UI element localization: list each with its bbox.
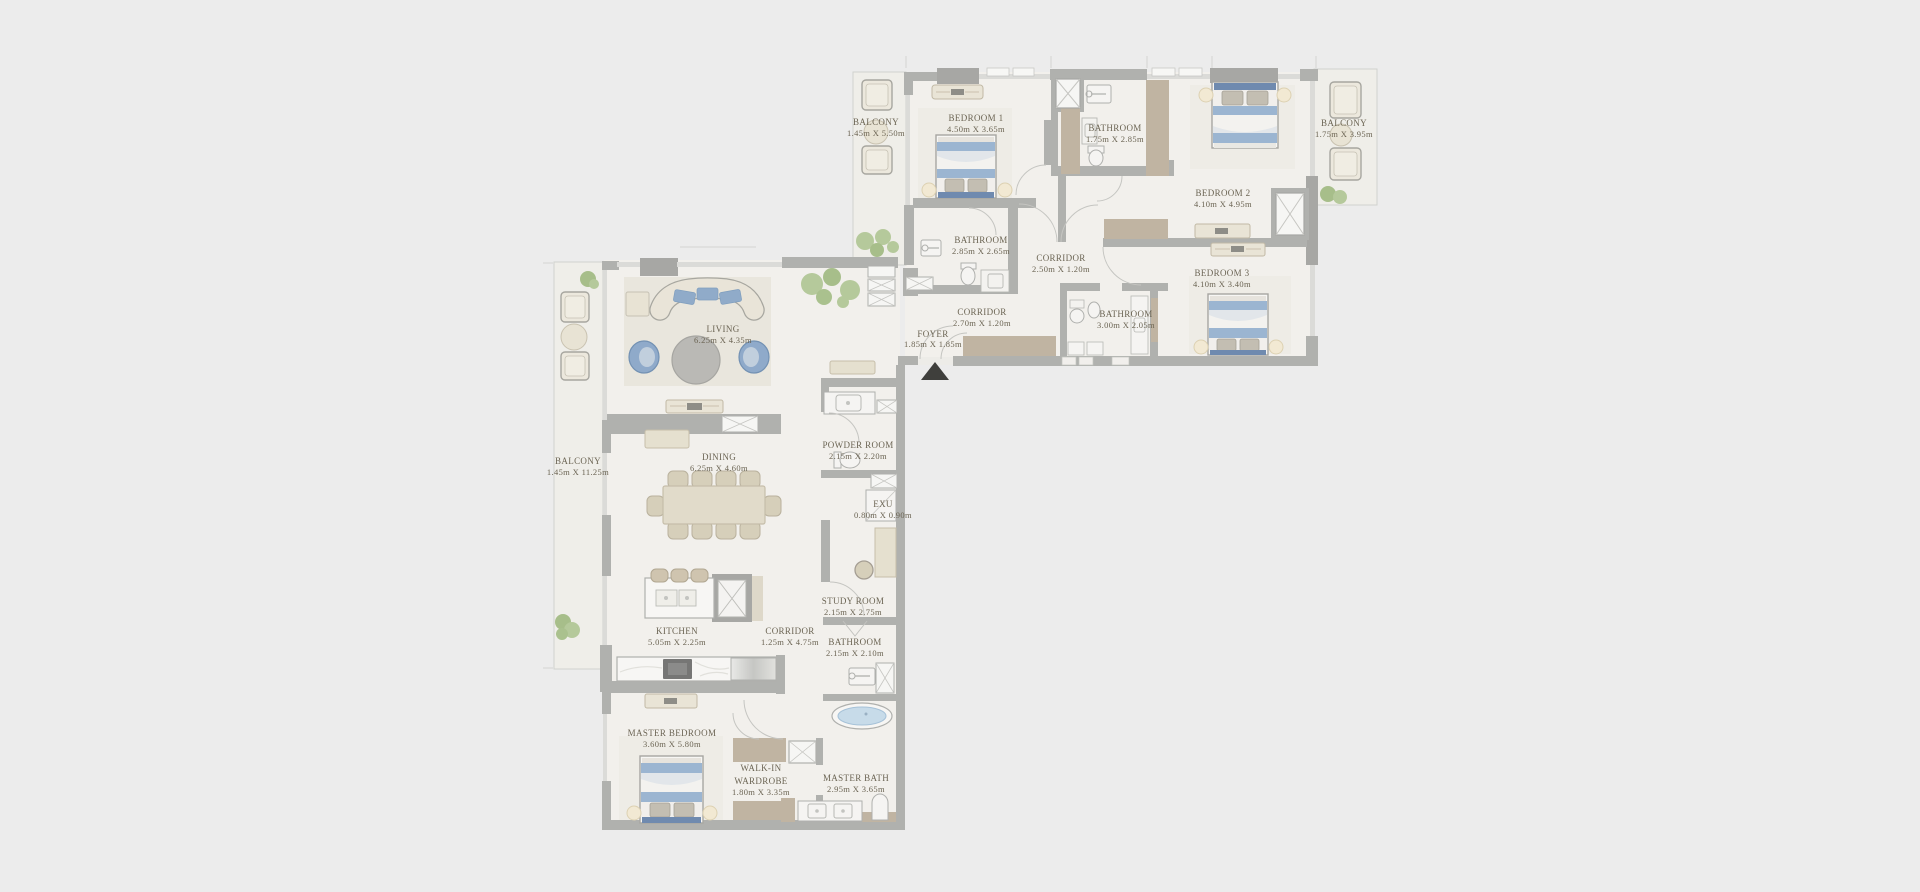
svg-text:2.15m X 2.75m: 2.15m X 2.75m: [824, 607, 882, 617]
svg-text:2.85m X 2.65m: 2.85m X 2.65m: [952, 246, 1010, 256]
svg-text:BALCONY: BALCONY: [555, 456, 601, 466]
svg-text:POWDER ROOM: POWDER ROOM: [822, 440, 893, 450]
svg-text:CORRIDOR: CORRIDOR: [765, 626, 814, 636]
svg-text:STUDY ROOM: STUDY ROOM: [822, 596, 884, 606]
svg-text:CORRIDOR: CORRIDOR: [957, 307, 1006, 317]
svg-text:EXU: EXU: [873, 499, 893, 509]
svg-text:3.00m X 2.05m: 3.00m X 2.05m: [1097, 320, 1155, 330]
svg-text:0.80m X 0.90m: 0.80m X 0.90m: [854, 510, 912, 520]
svg-text:1.45m X 5.50m: 1.45m X 5.50m: [847, 128, 905, 138]
svg-text:4.10m X 4.95m: 4.10m X 4.95m: [1194, 199, 1252, 209]
svg-text:4.10m X 3.40m: 4.10m X 3.40m: [1193, 279, 1251, 289]
svg-text:FOYER: FOYER: [917, 329, 948, 339]
svg-text:2.15m X 2.20m: 2.15m X 2.20m: [829, 451, 887, 461]
svg-text:6.25m X 4.60m: 6.25m X 4.60m: [690, 463, 748, 473]
svg-text:2.95m X 3.65m: 2.95m X 3.65m: [827, 784, 885, 794]
svg-text:BALCONY: BALCONY: [853, 117, 899, 127]
svg-text:BATHROOM: BATHROOM: [954, 235, 1007, 245]
svg-text:LIVING: LIVING: [706, 324, 739, 334]
svg-text:CORRIDOR: CORRIDOR: [1036, 253, 1085, 263]
svg-text:WARDROBE: WARDROBE: [734, 776, 787, 786]
svg-text:4.50m X 3.65m: 4.50m X 3.65m: [947, 124, 1005, 134]
svg-text:BEDROOM 3: BEDROOM 3: [1195, 268, 1250, 278]
svg-text:DINING: DINING: [702, 452, 736, 462]
svg-text:1.75m X 2.85m: 1.75m X 2.85m: [1086, 134, 1144, 144]
svg-text:BALCONY: BALCONY: [1321, 118, 1367, 128]
svg-text:BATHROOM: BATHROOM: [1099, 309, 1152, 319]
svg-text:MASTER BEDROOM: MASTER BEDROOM: [628, 728, 717, 738]
svg-text:BEDROOM 1: BEDROOM 1: [949, 113, 1004, 123]
svg-text:2.15m X 2.10m: 2.15m X 2.10m: [826, 648, 884, 658]
svg-text:1.85m X 1.85m: 1.85m X 1.85m: [904, 339, 962, 349]
svg-text:MASTER BATH: MASTER BATH: [823, 773, 889, 783]
svg-text:WALK-IN: WALK-IN: [741, 763, 782, 773]
svg-text:1.25m X 4.75m: 1.25m X 4.75m: [761, 637, 819, 647]
svg-text:3.60m X 5.80m: 3.60m X 5.80m: [643, 739, 701, 749]
svg-text:BATHROOM: BATHROOM: [1088, 123, 1141, 133]
svg-text:KITCHEN: KITCHEN: [656, 626, 698, 636]
svg-text:6.25m X 4.35m: 6.25m X 4.35m: [694, 335, 752, 345]
svg-text:1.45m X 11.25m: 1.45m X 11.25m: [547, 467, 609, 477]
svg-text:5.05m X 2.25m: 5.05m X 2.25m: [648, 637, 706, 647]
svg-text:1.80m X 3.35m: 1.80m X 3.35m: [732, 787, 790, 797]
svg-text:1.75m X 3.95m: 1.75m X 3.95m: [1315, 129, 1373, 139]
svg-text:BATHROOM: BATHROOM: [828, 637, 881, 647]
svg-text:2.70m X 1.20m: 2.70m X 1.20m: [953, 318, 1011, 328]
svg-text:2.50m X 1.20m: 2.50m X 1.20m: [1032, 264, 1090, 274]
svg-text:BEDROOM 2: BEDROOM 2: [1196, 188, 1251, 198]
